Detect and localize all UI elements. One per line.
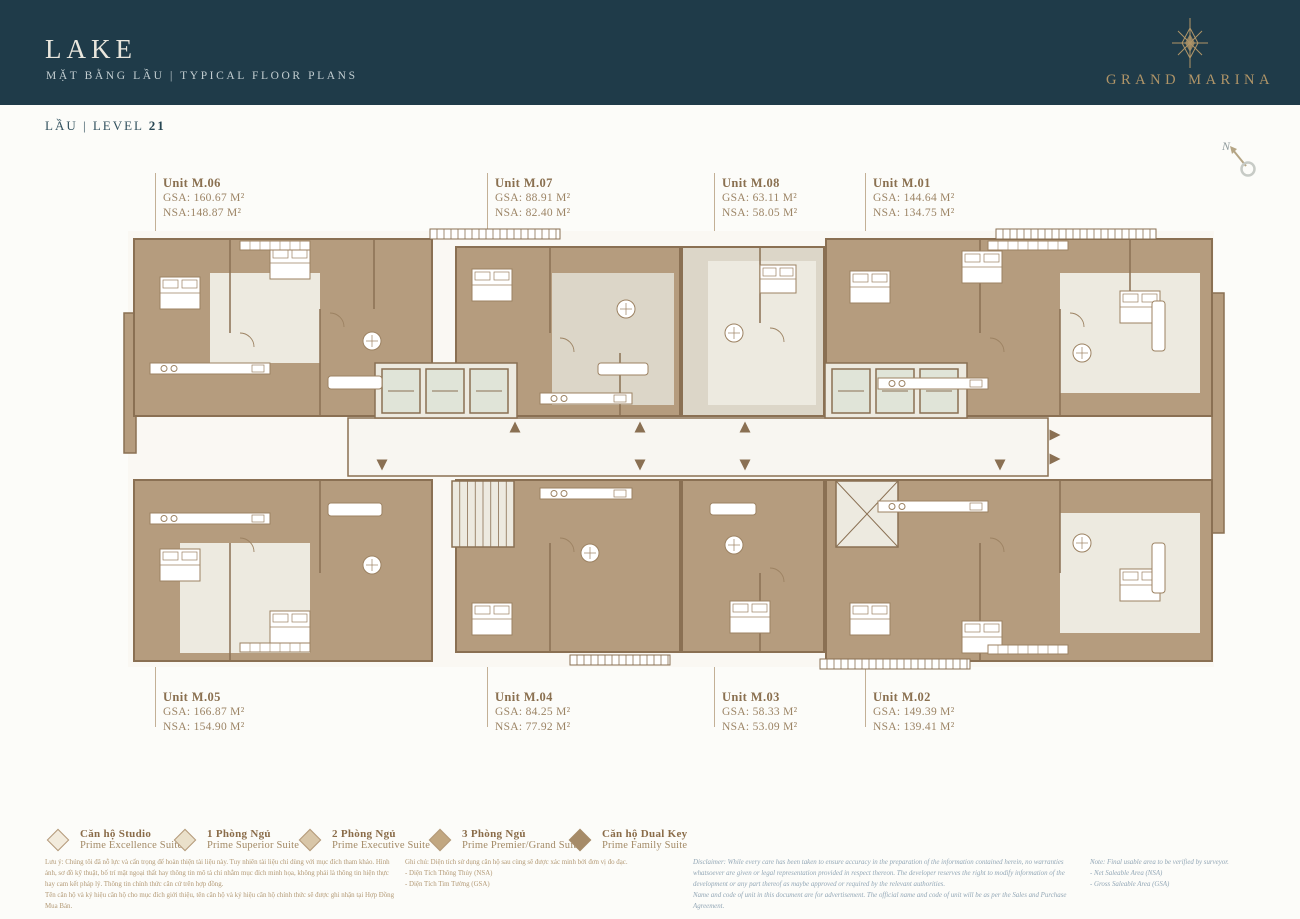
unit-name: Unit M.02 [873, 689, 954, 705]
one-bedroom-diamond-icon [174, 829, 197, 852]
unit-gsa: GSA: 144.64 M² [873, 191, 954, 206]
legend-vi-label: Căn hộ Dual Key [602, 828, 688, 840]
brand-block: GRAND MARINA [1095, 0, 1285, 105]
brand-name: GRAND MARINA [1095, 72, 1285, 89]
unit-nsa: NSA: 139.41 M² [873, 720, 954, 735]
two-bedroom-diamond-icon [299, 829, 322, 852]
legend-item-dualkey: Căn hộ Dual Key Prime Family Suite [568, 828, 688, 851]
legend-vi-label: 1 Phòng Ngủ [207, 828, 299, 840]
legend-vi-label: Căn hộ Studio [80, 828, 182, 840]
legend-item-2br: 2 Phòng Ngủ Prime Executive Suite [298, 828, 430, 851]
unit-name: Unit M.06 [163, 175, 244, 191]
unit-label-m02: Unit M.02 GSA: 149.39 M² NSA: 139.41 M² [873, 689, 954, 735]
unit-name: Unit M.01 [873, 175, 954, 191]
legend-en-label: Prime Family Suite [602, 840, 688, 851]
building-title: LAKE [45, 34, 137, 65]
unit-gsa: GSA: 149.39 M² [873, 705, 954, 720]
legend-en-label: Prime Superior Suite [207, 840, 299, 851]
legend-item-1br: 1 Phòng Ngủ Prime Superior Suite [173, 828, 299, 851]
unit-name: Unit M.04 [495, 689, 570, 705]
footnote-vi-disclaimer: Lưu ý: Chúng tôi đã nỗ lực và cẩn trọng … [45, 857, 397, 912]
legend-item-3br: 3 Phòng Ngủ Prime Premier/Grand Suite [428, 828, 581, 851]
studio-diamond-icon [47, 829, 70, 852]
header-bar: LAKE MẶT BẰNG LẦU | TYPICAL FLOOR PLANS … [0, 0, 1300, 105]
unit-gsa: GSA: 58.33 M² [722, 705, 797, 720]
unit-gsa: GSA: 63.11 M² [722, 191, 797, 206]
legend-en-label: Prime Excellence Suite [80, 840, 182, 851]
level-prefix: LẦU | LEVEL [45, 118, 149, 133]
level-number: 21 [149, 118, 166, 133]
legend-vi-label: 3 Phòng Ngủ [462, 828, 581, 840]
legend-item-studio: Căn hộ Studio Prime Excellence Suite [46, 828, 182, 851]
unit-nsa: NSA: 77.92 M² [495, 720, 570, 735]
three-bedroom-diamond-icon [429, 829, 452, 852]
unit-name: Unit M.03 [722, 689, 797, 705]
floor-plan [120, 213, 1230, 683]
unit-gsa: GSA: 166.87 M² [163, 705, 244, 720]
footnote-vi-notes: Ghi chú: Diện tích sử dụng căn hộ sau cù… [405, 857, 667, 890]
level-label: LẦU | LEVEL 21 [45, 118, 166, 134]
compass-emblem-icon [1168, 18, 1212, 68]
dual-key-diamond-icon [569, 829, 592, 852]
legend-vi-label: 2 Phòng Ngủ [332, 828, 430, 840]
unit-name: Unit M.08 [722, 175, 797, 191]
unit-label-m04: Unit M.04 GSA: 84.25 M² NSA: 77.92 M² [495, 689, 570, 735]
brochure-page: { "header": { "title": "LAKE", "subtitle… [0, 0, 1300, 919]
unit-gsa: GSA: 84.25 M² [495, 705, 570, 720]
legend-en-label: Prime Executive Suite [332, 840, 430, 851]
footnote-en-notes: Note: Final usable area to be verified b… [1090, 857, 1270, 890]
unit-label-m03: Unit M.03 GSA: 58.33 M² NSA: 53.09 M² [722, 689, 797, 735]
unit-label-m05: Unit M.05 GSA: 166.87 M² NSA: 154.90 M² [163, 689, 244, 735]
unit-name: Unit M.07 [495, 175, 570, 191]
north-arrow-icon: N [1220, 136, 1260, 180]
north-letter: N [1221, 139, 1231, 153]
unit-name: Unit M.05 [163, 689, 244, 705]
legend-en-label: Prime Premier/Grand Suite [462, 840, 581, 851]
unit-nsa: NSA: 53.09 M² [722, 720, 797, 735]
unit-gsa: GSA: 160.67 M² [163, 191, 244, 206]
unit-gsa: GSA: 88.91 M² [495, 191, 570, 206]
footnote-en-disclaimer: Disclaimer: While every care has been ta… [693, 857, 1085, 912]
page-subtitle: MẶT BẰNG LẦU | TYPICAL FLOOR PLANS [46, 70, 358, 82]
unit-nsa: NSA: 154.90 M² [163, 720, 244, 735]
